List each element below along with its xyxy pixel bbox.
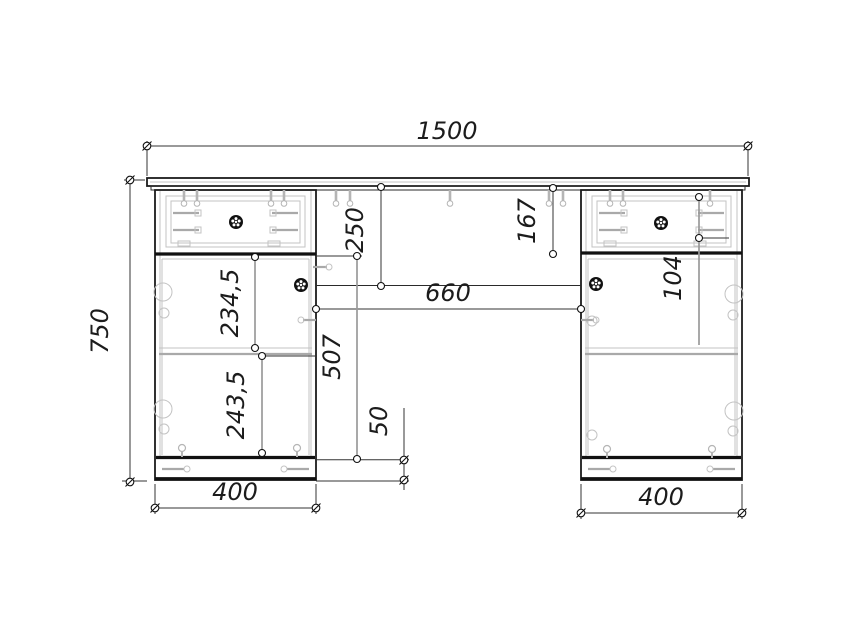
- dim-label-door-total: 507: [318, 333, 346, 380]
- dim-label-door-lower: 243,5: [222, 371, 250, 440]
- dim-label-back-panel: 250: [341, 207, 369, 253]
- hinge-icon: [154, 400, 172, 418]
- right-plinth: [588, 466, 735, 472]
- dimension-knee-space: 660: [316, 279, 581, 309]
- dim-label-knee-space: 660: [425, 279, 471, 307]
- dimension-total-width: 1500: [147, 117, 748, 146]
- right-door-knob-icon: [589, 277, 603, 291]
- dim-label-drawer-section: 167: [513, 197, 541, 244]
- dim-label-plinth: 50: [365, 406, 393, 437]
- dimension-plinth: 50: [365, 406, 404, 490]
- assembly-drawing: 1500 750 250 167 660 104 507 234,5 243,5…: [0, 0, 856, 642]
- right-pedestal: [581, 190, 743, 480]
- hinge-icon: [725, 285, 743, 303]
- dim-label-right-pedestal: 400: [638, 483, 684, 511]
- desk-top: [147, 178, 749, 190]
- left-door-knob-icon: [294, 278, 308, 292]
- dim-label-door-upper: 234,5: [216, 269, 244, 338]
- left-plinth: [162, 466, 309, 472]
- hinge-icon: [154, 283, 172, 301]
- drawing-canvas: 1500 750 250 167 660 104 507 234,5 243,5…: [0, 0, 856, 642]
- hinge-icon: [725, 402, 743, 420]
- dimension-door-upper: 234,5: [216, 257, 255, 348]
- dimension-right-pedestal-width: 400: [581, 483, 742, 513]
- dim-label-left-pedestal: 400: [212, 478, 258, 506]
- left-drawer-knob-icon: [229, 215, 243, 229]
- dim-label-drawer-front: 104: [659, 255, 687, 301]
- dimension-back-panel-height: 250: [341, 187, 381, 286]
- dim-label-total-height: 750: [86, 308, 114, 354]
- dim-label-total-width: 1500: [416, 117, 477, 145]
- dimension-total-height: 750: [86, 180, 130, 482]
- dimension-door-lower: 243,5: [222, 356, 262, 453]
- left-drawer: [166, 190, 305, 247]
- dimension-door-total: 507: [318, 256, 357, 459]
- right-drawer-knob-icon: [654, 216, 668, 230]
- dimension-right-drawer-section: 167: [513, 188, 553, 254]
- dimension-left-pedestal-width: 400: [155, 478, 316, 508]
